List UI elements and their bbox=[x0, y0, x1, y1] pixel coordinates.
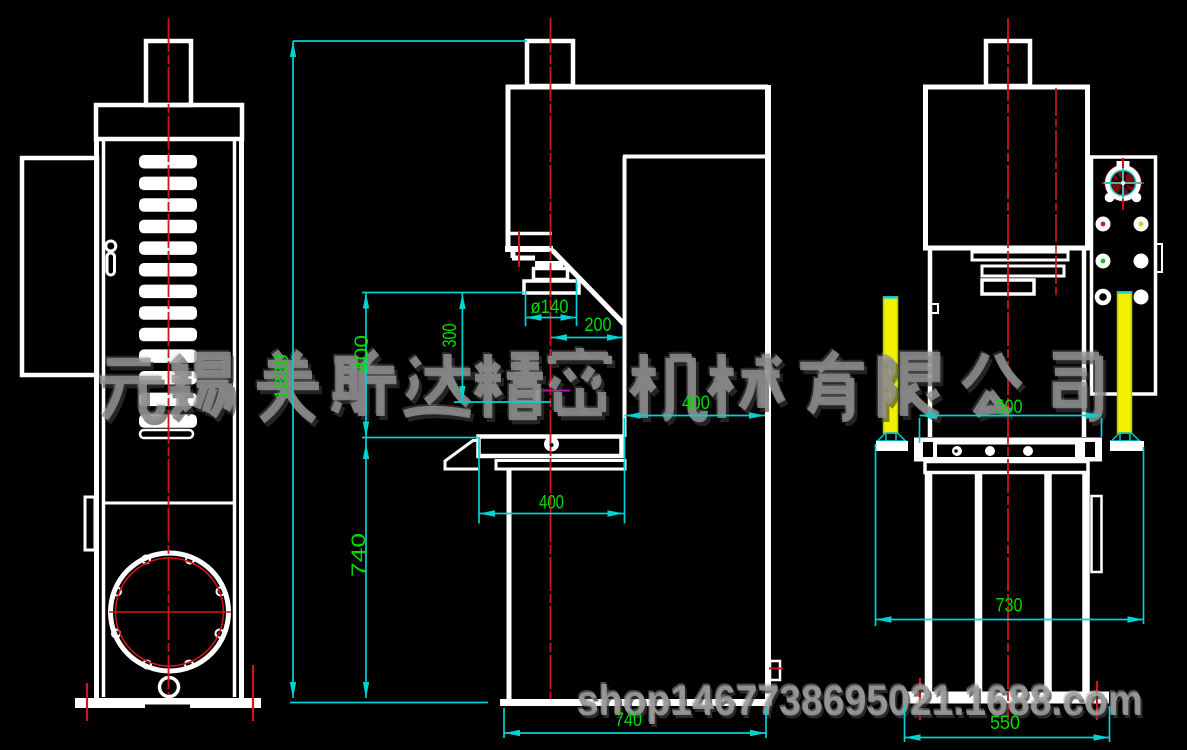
svg-text:shop1467738695021.1688.com: shop1467738695021.1688.com bbox=[577, 677, 1143, 725]
svg-text:730: 730 bbox=[996, 596, 1023, 617]
svg-text:500: 500 bbox=[996, 397, 1023, 418]
svg-text:1830: 1830 bbox=[272, 354, 293, 400]
svg-text:200: 200 bbox=[585, 315, 612, 336]
svg-text:300: 300 bbox=[440, 324, 461, 348]
svg-text:740: 740 bbox=[349, 533, 370, 577]
svg-text:ø140: ø140 bbox=[531, 297, 569, 318]
svg-text:400: 400 bbox=[352, 335, 373, 373]
svg-text:400: 400 bbox=[539, 493, 564, 514]
svg-text:550: 550 bbox=[990, 713, 1020, 734]
svg-text:400: 400 bbox=[682, 393, 710, 414]
svg-text:740: 740 bbox=[615, 710, 642, 731]
